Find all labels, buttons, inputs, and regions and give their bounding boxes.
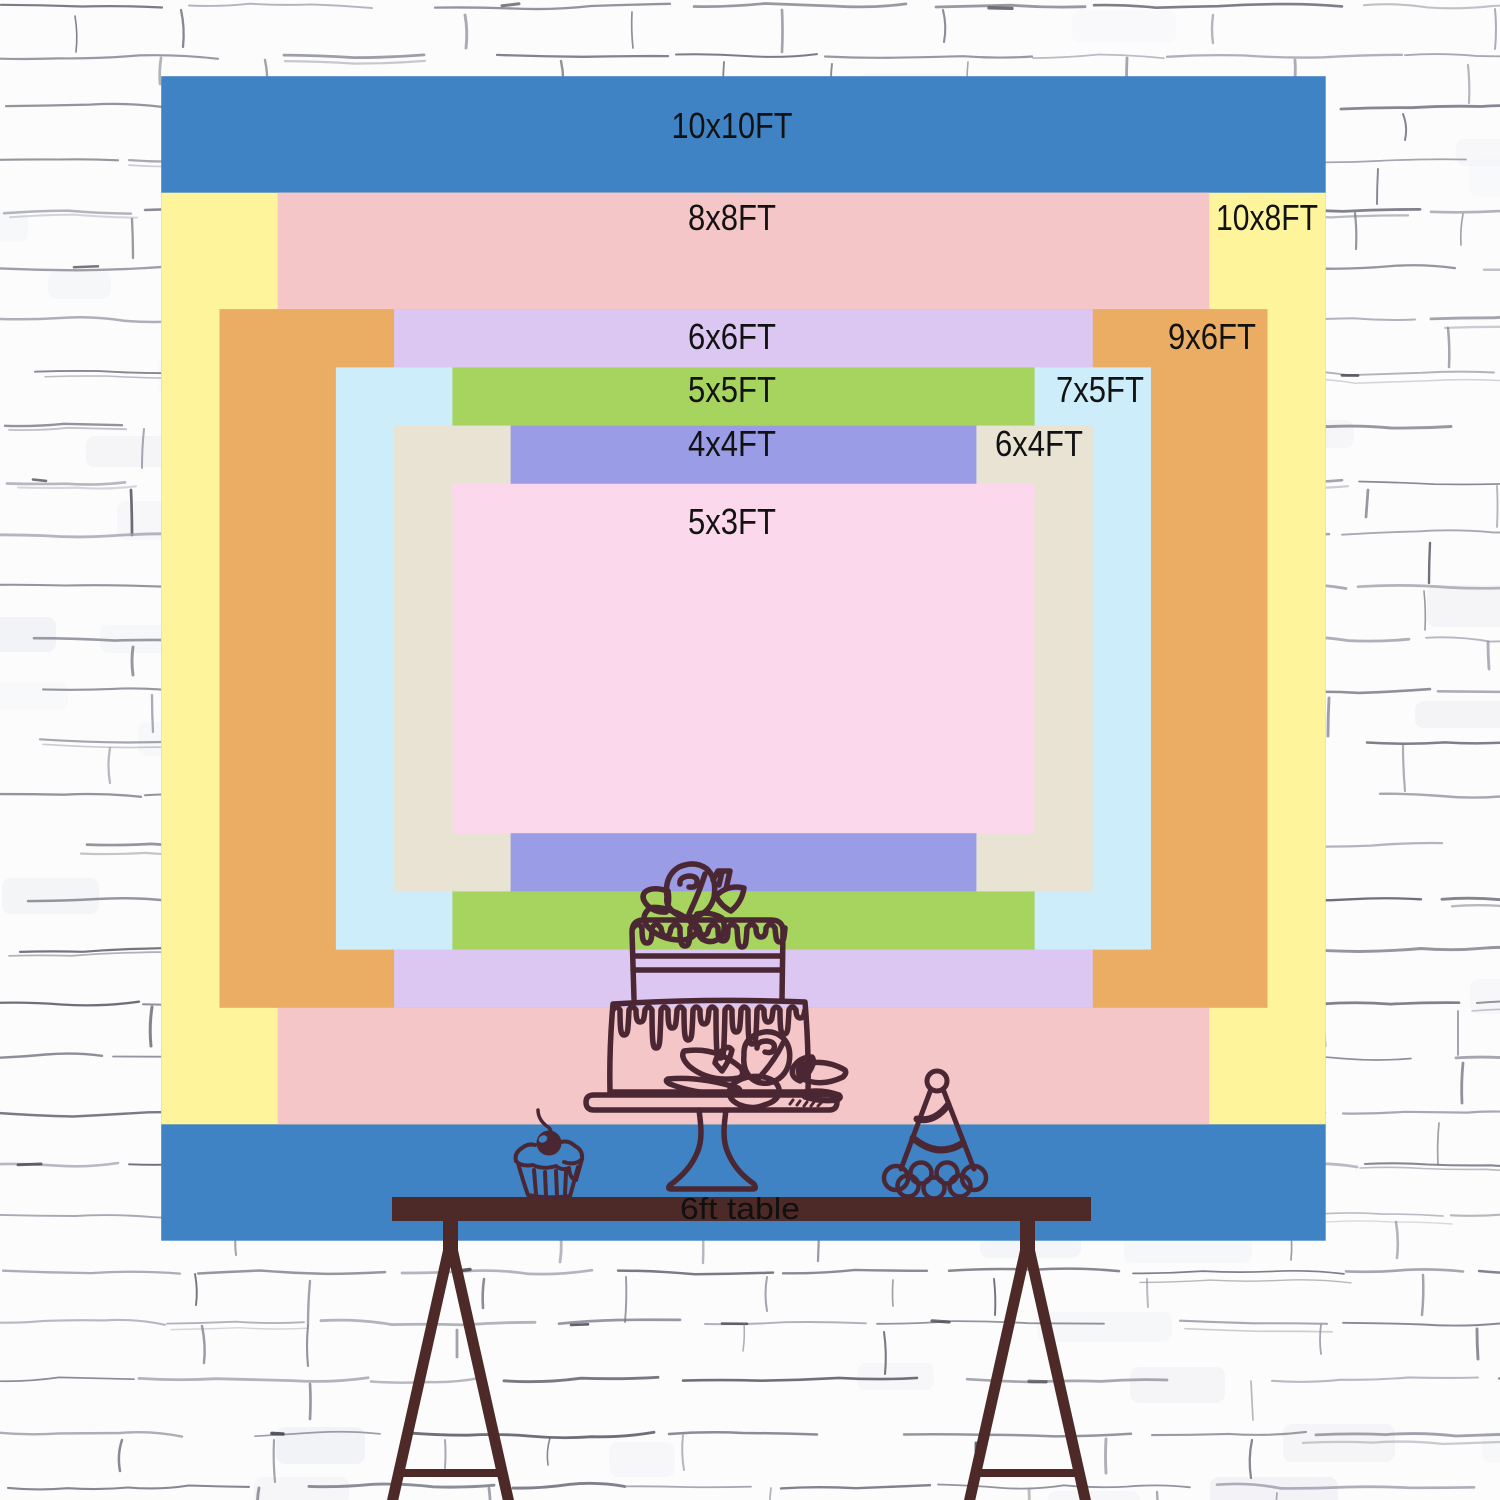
svg-text:6ft table: 6ft table [680, 1191, 800, 1226]
svg-text:6x4FT: 6x4FT [995, 423, 1083, 464]
svg-text:5x5FT: 5x5FT [688, 369, 776, 410]
svg-text:10x8FT: 10x8FT [1216, 197, 1318, 238]
svg-text:5x3FT: 5x3FT [688, 501, 776, 542]
svg-text:6x6FT: 6x6FT [688, 316, 776, 357]
svg-text:4x4FT: 4x4FT [688, 423, 776, 464]
svg-text:8x8FT: 8x8FT [688, 197, 776, 238]
svg-text:7x5FT: 7x5FT [1056, 369, 1144, 410]
svg-text:9x6FT: 9x6FT [1168, 316, 1256, 357]
svg-text:10x10FT: 10x10FT [672, 105, 793, 146]
